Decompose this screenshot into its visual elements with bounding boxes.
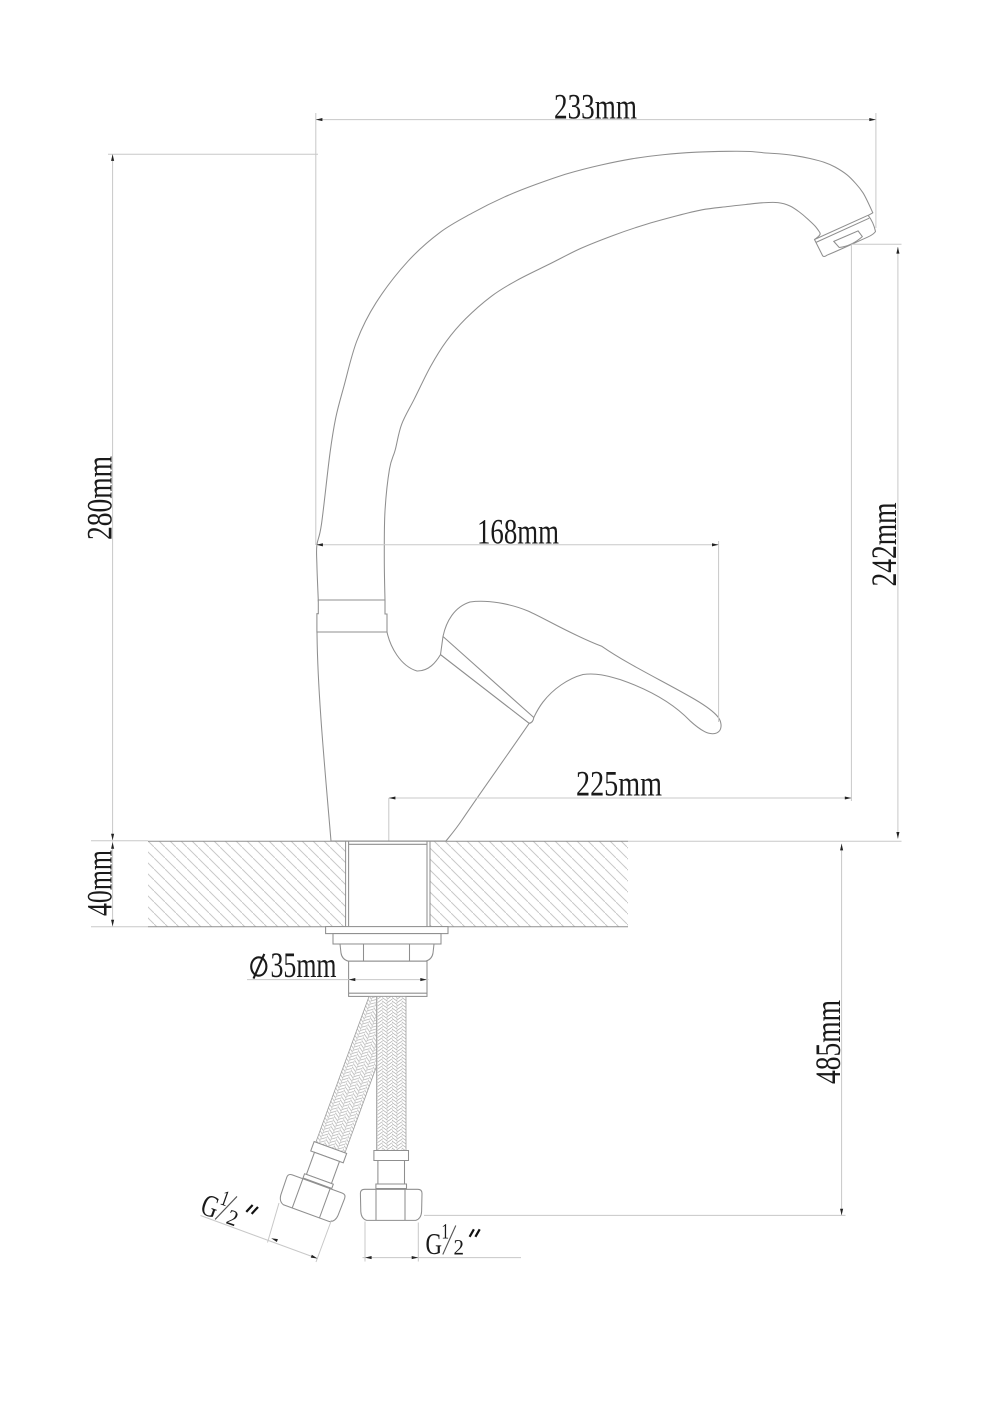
svg-text:G: G xyxy=(426,1226,443,1261)
svg-text:40mm: 40mm xyxy=(80,850,120,916)
svg-text:35mm: 35mm xyxy=(271,945,337,985)
svg-text:485mm: 485mm xyxy=(808,1000,848,1084)
svg-text:225mm: 225mm xyxy=(576,764,662,804)
svg-text:2: 2 xyxy=(454,1235,465,1260)
svg-text:242mm: 242mm xyxy=(864,503,904,587)
svg-text:233mm: 233mm xyxy=(554,86,637,126)
svg-text:280mm: 280mm xyxy=(80,456,120,540)
svg-text:168mm: 168mm xyxy=(477,511,559,551)
svg-text:1: 1 xyxy=(442,1219,450,1244)
